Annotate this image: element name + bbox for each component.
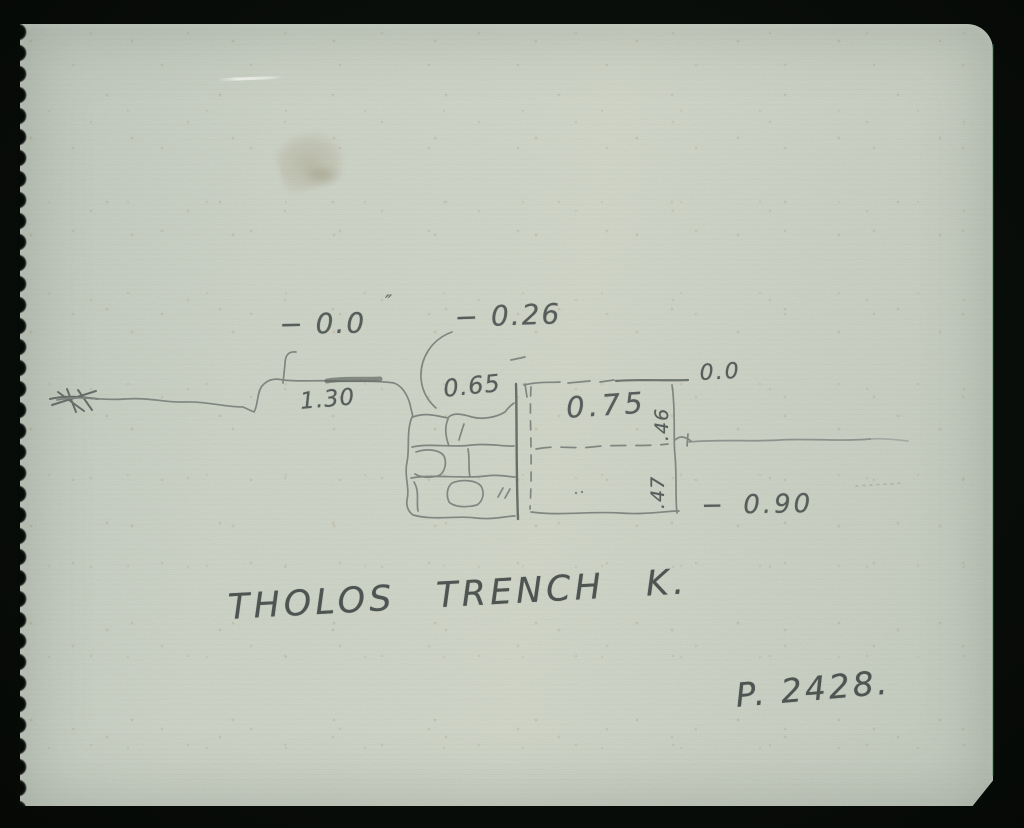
photo-of-notebook-page: { "photo": { "background_color": "#0a0e0… [0, 0, 1024, 828]
measurement-datum-left: − 0.0 [279, 306, 366, 341]
measurement-shelf-width: 1.30 [299, 384, 356, 415]
photo-scratch-artifact [218, 76, 284, 81]
paper-right-edge-fringe [992, 44, 994, 776]
measurement-upper-depth: .46 [651, 408, 673, 441]
measurement-bottom-level: − 0.90 [701, 489, 813, 521]
clipped-corner [971, 778, 995, 808]
measurement-datum-right: 0.0 [699, 359, 741, 386]
paper-stain-small [302, 164, 342, 186]
measurement-lower-depth: .47 [647, 476, 669, 509]
measurement-step-level: − 0.26 [454, 297, 562, 334]
measurement-fill-width: 0.75 [565, 385, 648, 425]
ditto-mark: ″ [385, 291, 392, 313]
spiral-binding-torn-edge [17, 22, 34, 808]
measurement-wall-height: 0.65 [442, 369, 502, 403]
